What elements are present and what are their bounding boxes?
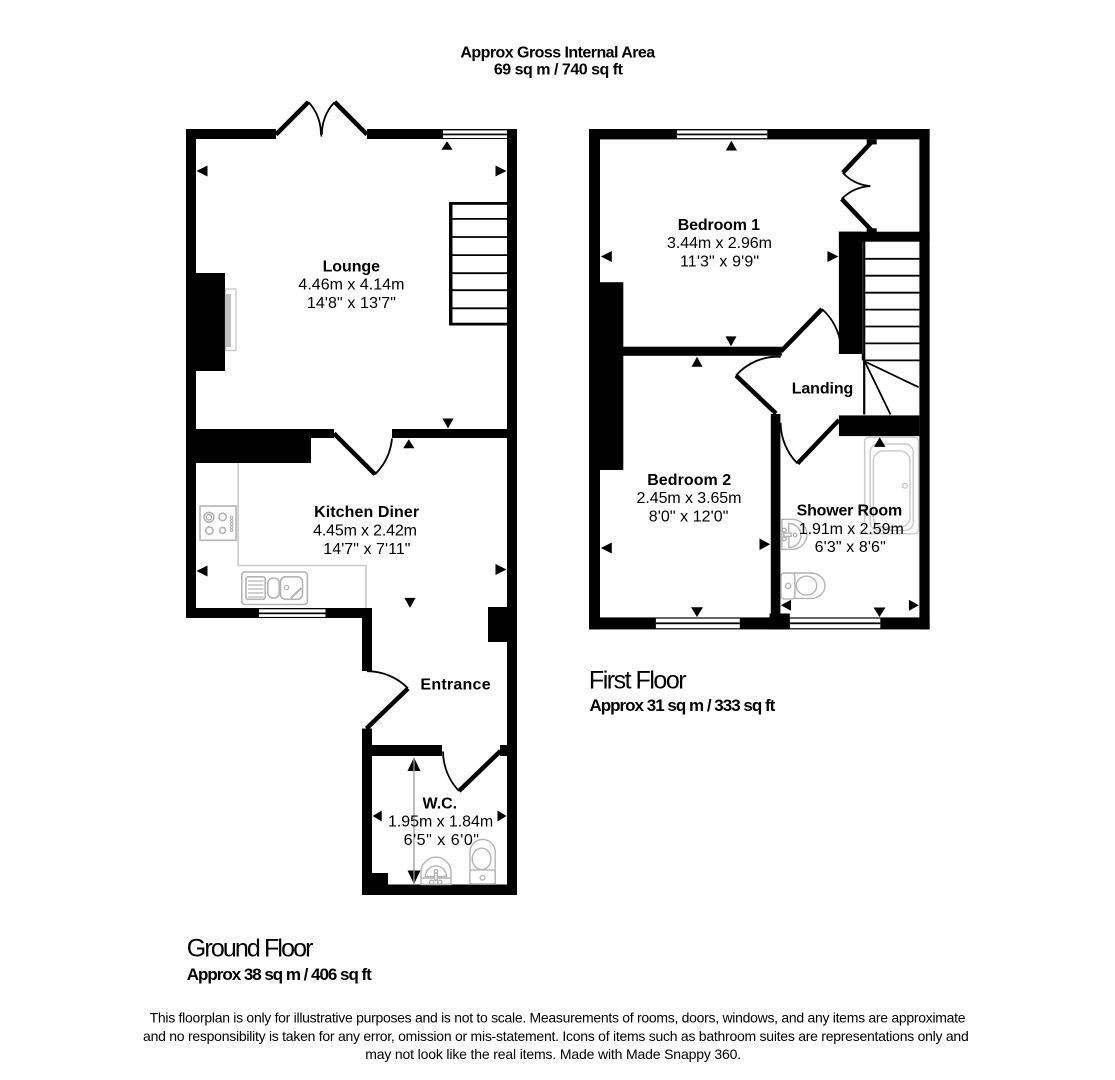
svg-text:Approx 31 sq m / 333 sq ft: Approx 31 sq m / 333 sq ft [590, 696, 776, 715]
svg-text:11'3" x 9'9": 11'3" x 9'9" [680, 253, 759, 270]
svg-text:2.45m x 3.65m: 2.45m x 3.65m [637, 490, 742, 507]
svg-text:4.45m x 2.42m: 4.45m x 2.42m [313, 523, 417, 540]
svg-text:6'5" x 6'0": 6'5" x 6'0" [404, 832, 479, 849]
svg-text:8'0" x 12'0": 8'0" x 12'0" [649, 508, 729, 525]
svg-text:Bedroom 1: Bedroom 1 [678, 217, 760, 234]
svg-text:1.91m x 2.59m: 1.91m x 2.59m [799, 521, 904, 538]
svg-text:Approx Gross Internal Area: Approx Gross Internal Area [460, 44, 655, 61]
svg-text:Entrance: Entrance [420, 676, 490, 693]
svg-text:Landing: Landing [792, 380, 854, 397]
svg-text:1.95m x 1.84m: 1.95m x 1.84m [388, 814, 493, 831]
svg-text:may not look like the real ite: may not look like the real items. Made w… [365, 1046, 741, 1062]
svg-text:14'8" x 13'7": 14'8" x 13'7" [307, 295, 396, 312]
svg-text:Shower Room: Shower Room [797, 503, 903, 520]
svg-text:Approx 38 sq m / 406 sq ft: Approx 38 sq m / 406 sq ft [187, 965, 372, 984]
svg-text:W.C.: W.C. [423, 795, 458, 812]
svg-text:3.44m x 2.96m: 3.44m x 2.96m [667, 235, 772, 252]
svg-text:69 sq m / 740 sq ft: 69 sq m / 740 sq ft [494, 62, 624, 79]
svg-text:Lounge: Lounge [323, 258, 380, 275]
svg-text:4.46m x 4.14m: 4.46m x 4.14m [298, 277, 404, 294]
svg-text:6'3" x 8'6": 6'3" x 8'6" [815, 539, 886, 556]
svg-text:Bedroom 2: Bedroom 2 [647, 472, 731, 489]
svg-text:First Floor: First Floor [589, 667, 687, 695]
svg-text:14'7" x 7'11": 14'7" x 7'11" [323, 541, 410, 558]
svg-text:and no responsibility is taken: and no responsibility is taken for any e… [143, 1028, 969, 1044]
svg-text:Ground Floor: Ground Floor [187, 934, 314, 962]
svg-text:This floorplan is only for ill: This floorplan is only for illustrative … [150, 1010, 966, 1026]
svg-text:Kitchen Diner: Kitchen Diner [314, 504, 419, 521]
